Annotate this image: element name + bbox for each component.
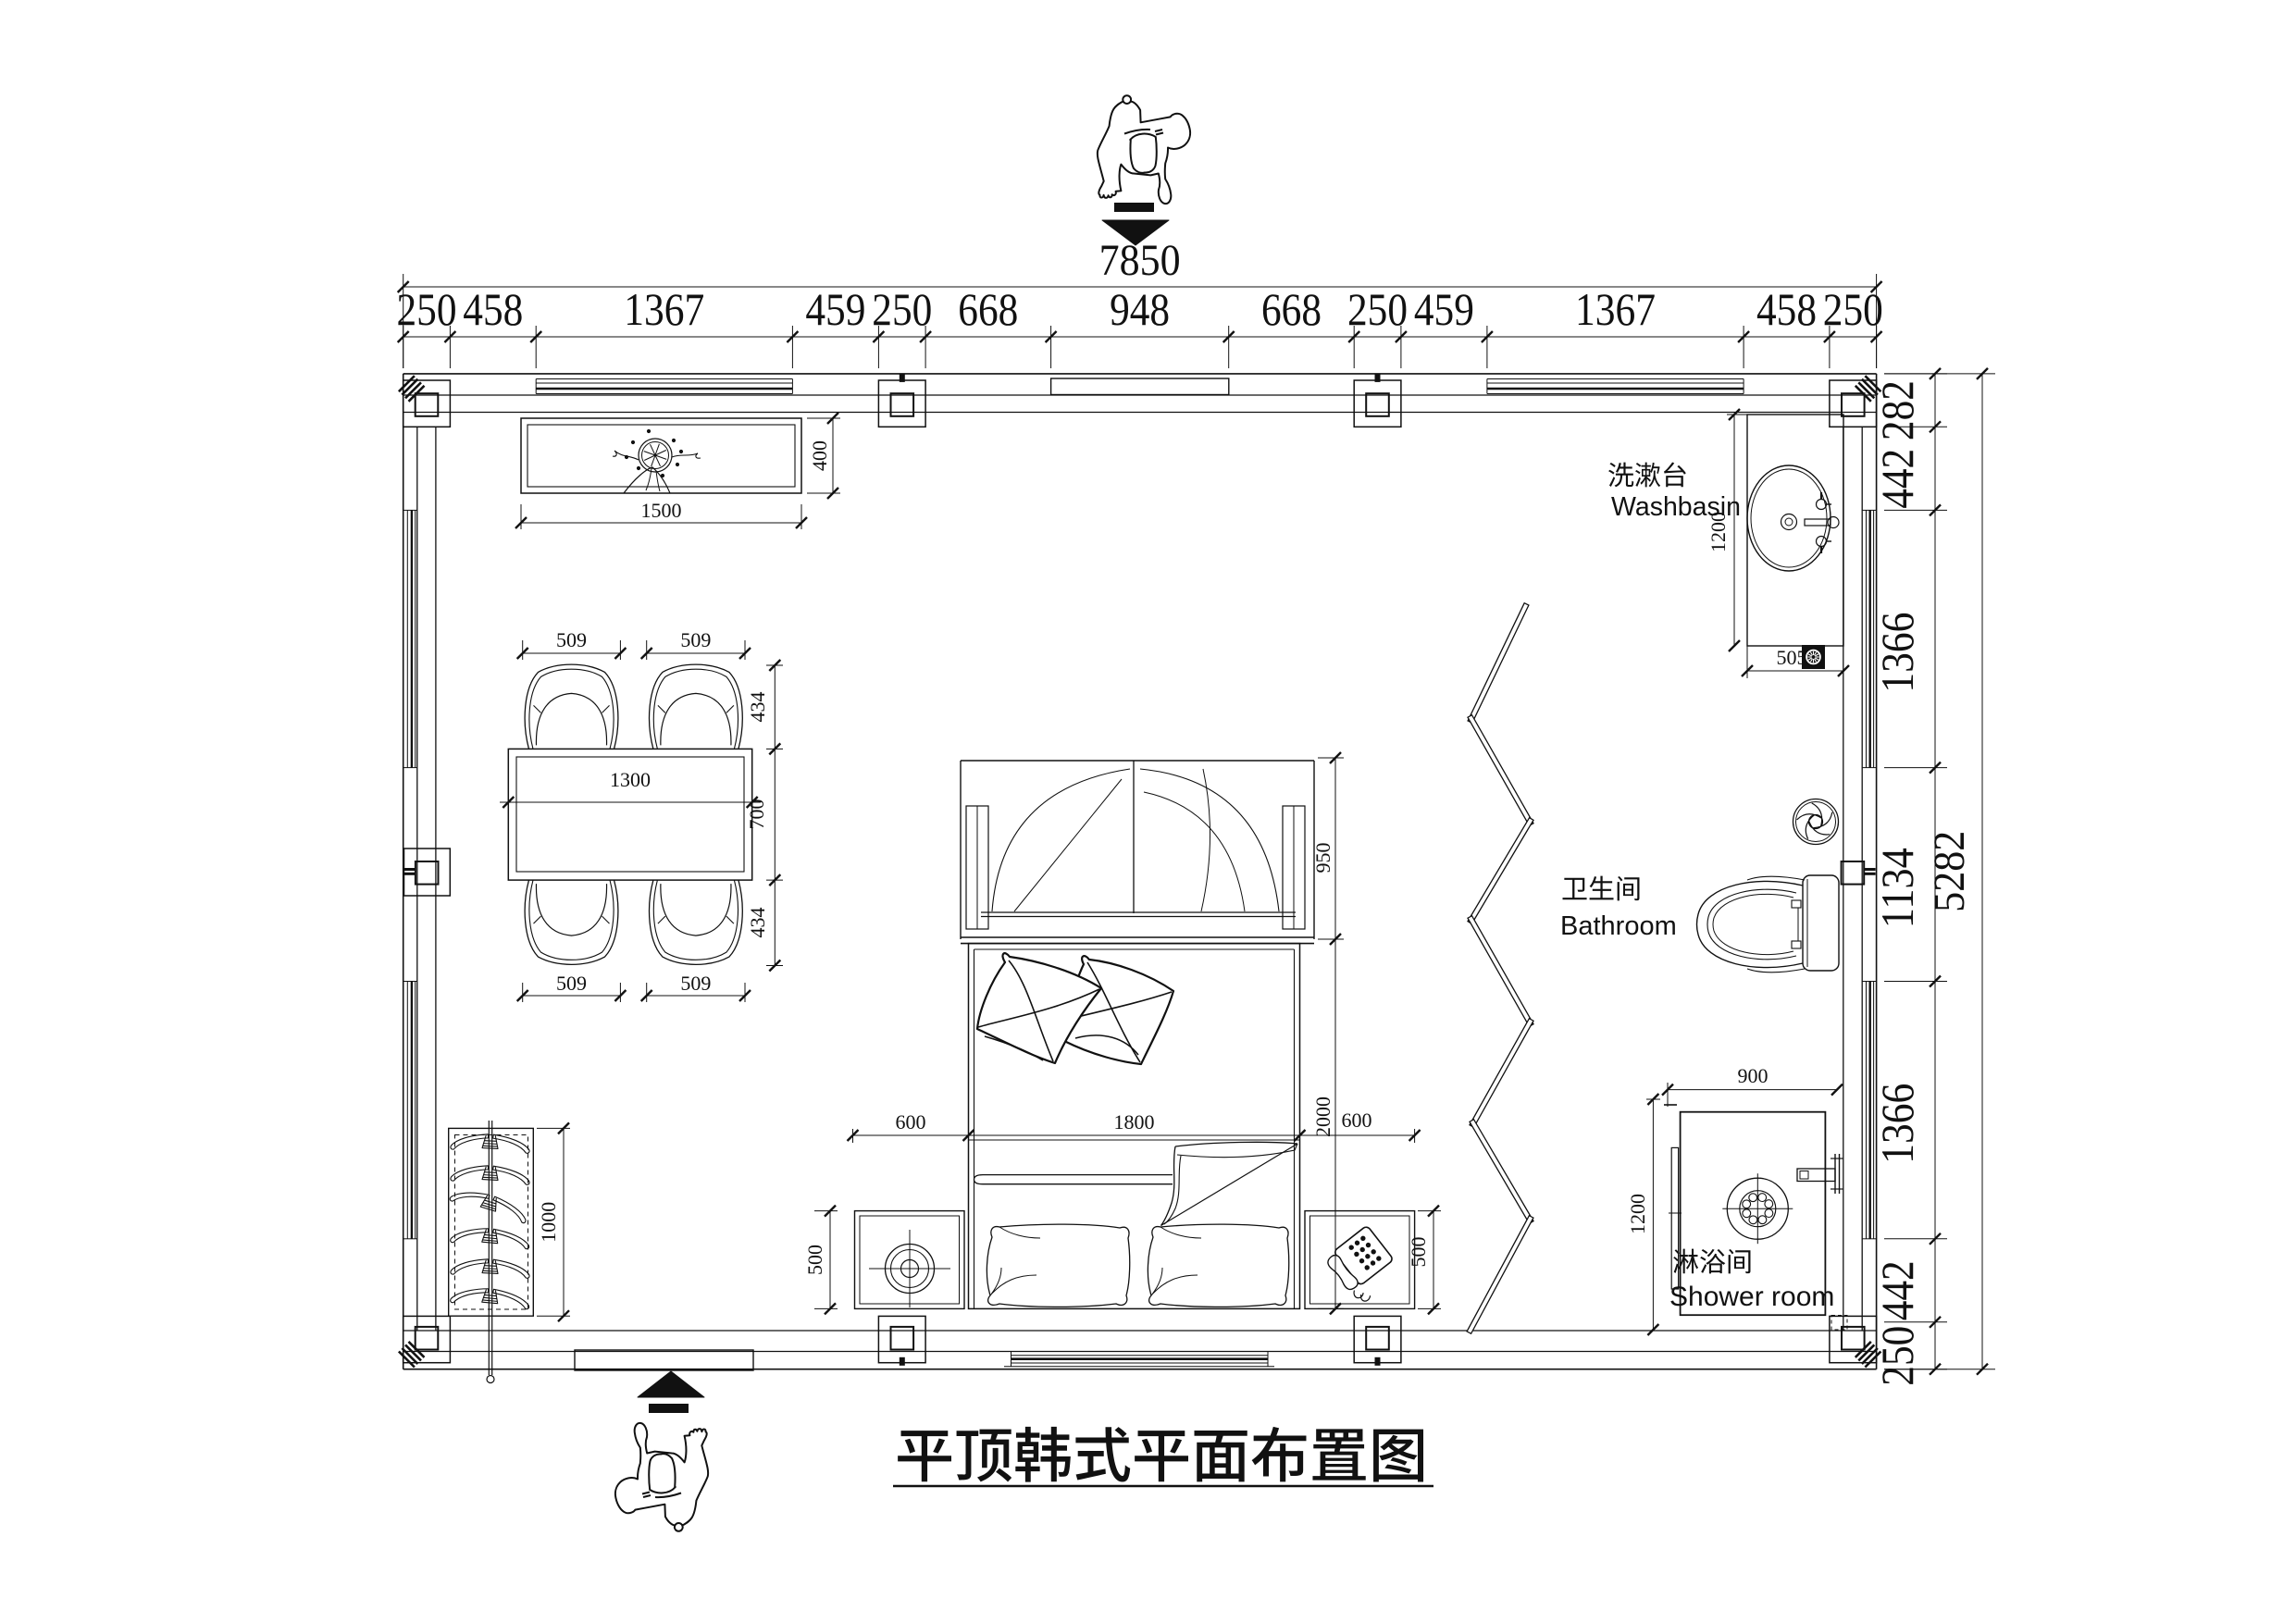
svg-text:1366: 1366 bbox=[1871, 1084, 1923, 1164]
svg-text:1200: 1200 bbox=[1626, 1194, 1649, 1234]
svg-text:2000: 2000 bbox=[1311, 1096, 1334, 1137]
svg-text:459: 459 bbox=[805, 283, 865, 335]
svg-text:1367: 1367 bbox=[1575, 283, 1656, 335]
svg-text:5282: 5282 bbox=[1925, 831, 1974, 912]
svg-text:509: 509 bbox=[680, 628, 711, 651]
svg-text:250: 250 bbox=[872, 283, 932, 335]
svg-text:Washbasin: Washbasin bbox=[1611, 492, 1741, 522]
svg-text:442: 442 bbox=[1871, 1260, 1923, 1320]
svg-text:Shower room: Shower room bbox=[1669, 1282, 1834, 1312]
svg-text:500: 500 bbox=[1407, 1237, 1430, 1268]
svg-text:1300: 1300 bbox=[610, 768, 651, 791]
svg-text:668: 668 bbox=[1261, 283, 1322, 335]
svg-text:250: 250 bbox=[1823, 283, 1883, 335]
svg-text:Bathroom: Bathroom bbox=[1560, 911, 1677, 941]
svg-text:459: 459 bbox=[1414, 283, 1474, 335]
svg-text:434: 434 bbox=[746, 908, 769, 938]
svg-text:7850: 7850 bbox=[1099, 236, 1181, 285]
svg-text:509: 509 bbox=[556, 972, 587, 995]
svg-text:458: 458 bbox=[463, 283, 523, 335]
svg-text:509: 509 bbox=[556, 628, 587, 651]
svg-text:250: 250 bbox=[1347, 283, 1408, 335]
svg-text:1000: 1000 bbox=[537, 1202, 560, 1243]
svg-text:1134: 1134 bbox=[1871, 848, 1923, 928]
svg-text:509: 509 bbox=[680, 972, 711, 995]
svg-text:600: 600 bbox=[896, 1110, 926, 1134]
svg-text:600: 600 bbox=[1342, 1109, 1372, 1132]
svg-text:950: 950 bbox=[1311, 843, 1334, 873]
svg-text:900: 900 bbox=[1738, 1064, 1769, 1087]
svg-text:458: 458 bbox=[1756, 283, 1817, 335]
svg-text:250: 250 bbox=[397, 283, 457, 335]
svg-text:434: 434 bbox=[746, 692, 769, 723]
svg-text:1367: 1367 bbox=[624, 283, 704, 335]
svg-text:400: 400 bbox=[808, 440, 831, 471]
svg-text:948: 948 bbox=[1110, 283, 1170, 335]
svg-text:500: 500 bbox=[803, 1245, 826, 1275]
svg-text:1500: 1500 bbox=[641, 499, 682, 522]
svg-text:442: 442 bbox=[1871, 449, 1923, 509]
svg-text:1366: 1366 bbox=[1871, 613, 1923, 693]
svg-text:282: 282 bbox=[1871, 380, 1923, 440]
svg-text:250: 250 bbox=[1871, 1326, 1923, 1386]
svg-text:700: 700 bbox=[745, 799, 768, 830]
svg-text:668: 668 bbox=[958, 283, 1018, 335]
svg-text:1800: 1800 bbox=[1114, 1110, 1155, 1134]
